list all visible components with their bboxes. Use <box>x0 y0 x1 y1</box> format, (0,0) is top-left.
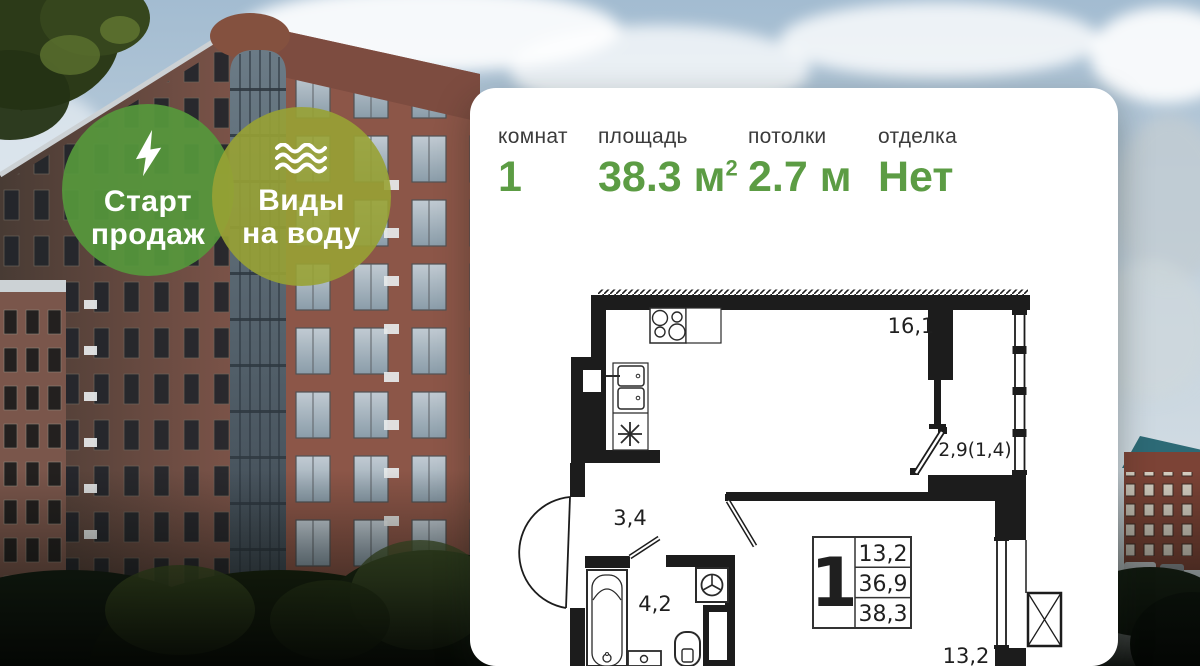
bathroom-sink <box>628 651 661 666</box>
kitchen-counter <box>686 308 721 343</box>
badge-sales-start: Старт продаж <box>62 104 234 276</box>
stat-label: потолки <box>748 125 878 149</box>
stats-row: комнат 1 площадь 38.3 м2 потолки 2.7 м о… <box>470 88 1118 199</box>
waves-icon <box>274 143 330 175</box>
badge-text-line: на воду <box>242 217 361 250</box>
label-kitchen-living: 16,1 <box>888 314 935 338</box>
area-superscript: 2 <box>725 156 737 181</box>
stamp-living-area: 13,2 <box>859 542 908 567</box>
stat-value: Нет <box>878 156 998 199</box>
stat-finishing: отделка Нет <box>878 125 998 199</box>
stat-label: комнат <box>498 125 598 149</box>
stamp-area: 36,9 <box>859 572 908 597</box>
area-stamp: 1 13,2 36,9 38,3 <box>810 537 911 628</box>
badge-text-line: продаж <box>91 218 205 251</box>
stove <box>650 308 686 343</box>
bathtub <box>587 570 627 666</box>
stat-rooms: комнат 1 <box>498 125 598 199</box>
label-room: 13,2 <box>943 644 990 666</box>
room-window <box>994 537 1026 649</box>
duct-shaft <box>709 612 727 660</box>
lightning-icon <box>128 130 168 176</box>
toilet <box>675 632 700 666</box>
label-loggia: 2,9(1,4) <box>938 440 1011 461</box>
badge-text-line: Виды <box>258 184 345 217</box>
listing-card: комнат 1 площадь 38.3 м2 потолки 2.7 м о… <box>470 88 1118 666</box>
listing-promo-image: Старт продаж Виды на воду комнат 1 площа… <box>0 0 1200 666</box>
stat-value: 1 <box>498 156 598 199</box>
stamp-rooms: 1 <box>810 544 857 623</box>
stamp-total-area: 38,3 <box>859 602 908 627</box>
bathroom-door <box>630 538 659 557</box>
label-bathroom: 4,2 <box>638 592 671 616</box>
stat-value: 2.7 м <box>748 156 878 199</box>
vent-shaft-box <box>1028 593 1061 646</box>
stat-value: 38.3 м2 <box>598 156 748 199</box>
entrance-door <box>519 497 570 608</box>
floor-plan: 1 13,2 36,9 38,3 16,1 2,9(1,4) 3,4 4,2 1… <box>508 288 1118 666</box>
label-hall: 3,4 <box>613 506 646 530</box>
stat-area: площадь 38.3 м2 <box>598 125 748 199</box>
area-number: 38.3 м <box>598 153 725 201</box>
stat-ceilings: потолки 2.7 м <box>748 125 878 199</box>
wall-niche <box>583 370 601 392</box>
fridge-symbol <box>618 422 642 446</box>
badge-water-views: Виды на воду <box>212 107 391 286</box>
washing-machine <box>696 568 728 602</box>
room-door <box>725 494 755 546</box>
stat-label: отделка <box>878 125 998 149</box>
badge-text-line: Старт <box>104 185 192 218</box>
stat-label: площадь <box>598 125 748 149</box>
